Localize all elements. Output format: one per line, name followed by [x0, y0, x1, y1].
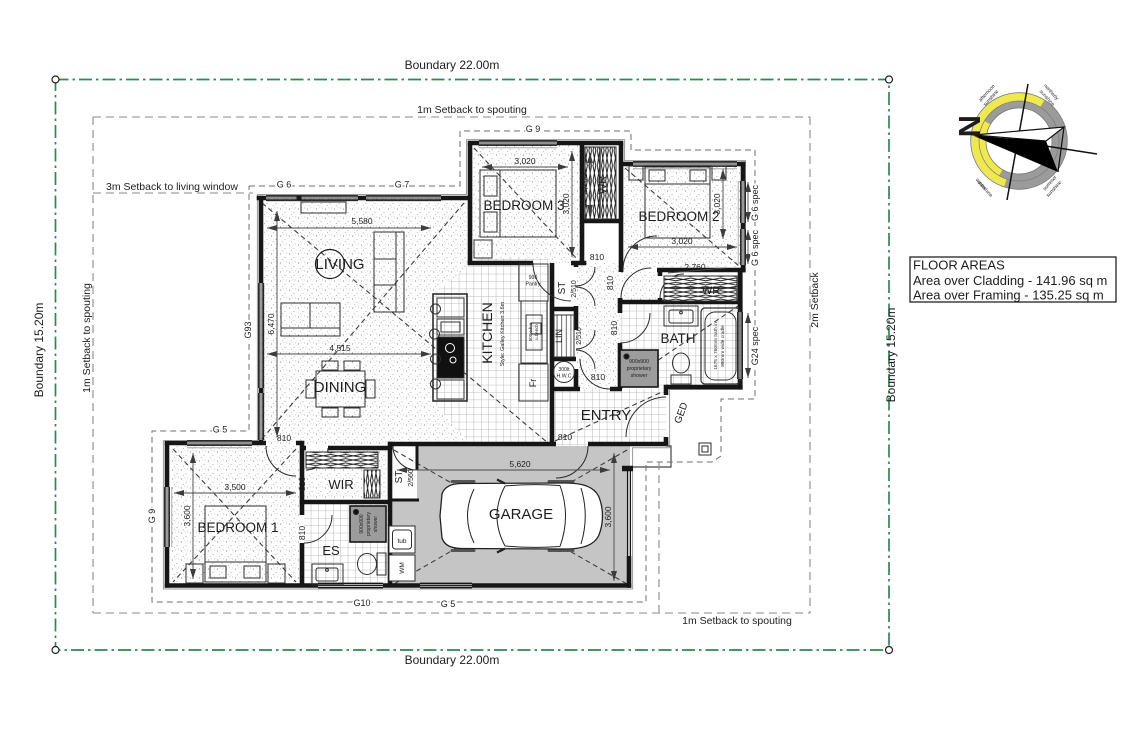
svg-text:shower: shower — [631, 373, 648, 379]
svg-text:1m Setback to spouting: 1m Setback to spouting — [81, 283, 93, 393]
svg-text:LIN: LIN — [554, 329, 564, 343]
svg-text:1m Setback to spouting: 1m Setback to spouting — [417, 104, 527, 116]
svg-text:Boundary 15.20m: Boundary 15.20m — [884, 308, 898, 403]
svg-text:ENTRY: ENTRY — [581, 407, 632, 424]
svg-text:KITCHEN: KITCHEN — [479, 302, 495, 363]
svg-text:WIR: WIR — [328, 477, 353, 492]
svg-text:Boundary 22.00m: Boundary 22.00m — [405, 653, 500, 667]
svg-text:shower: shower — [373, 516, 379, 532]
svg-text:G10: G10 — [353, 598, 370, 608]
svg-text:Fr: Fr — [528, 379, 538, 388]
svg-text:600 e.h.o: 600 e.h.o — [528, 322, 533, 341]
svg-text:810: 810 — [297, 526, 307, 540]
svg-text:G 9: G 9 — [526, 124, 541, 134]
svg-text:BEDROOM 2: BEDROOM 2 — [638, 209, 719, 224]
svg-text:3,020: 3,020 — [671, 236, 693, 246]
svg-text:3,500: 3,500 — [224, 482, 246, 492]
svg-text:WR: WR — [702, 285, 720, 297]
svg-text:G 5: G 5 — [441, 599, 456, 609]
svg-text:2/510: 2/510 — [576, 327, 583, 345]
svg-text:810: 810 — [609, 321, 619, 335]
svg-text:G 6 spec: G 6 spec — [750, 184, 760, 221]
svg-text:880mm wide cradle: 880mm wide cradle — [720, 325, 726, 367]
svg-text:3,600: 3,600 — [182, 505, 192, 527]
svg-text:u.bench: u.bench — [534, 324, 539, 340]
svg-text:1675 x 760mm bath in: 1675 x 760mm bath in — [713, 322, 719, 370]
svg-text:3m Setback to living window: 3m Setback to living window — [106, 181, 238, 193]
svg-text:G 7: G 7 — [395, 180, 410, 190]
svg-text:BATH: BATH — [660, 331, 695, 346]
svg-text:810: 810 — [590, 252, 604, 262]
svg-text:2,760: 2,760 — [579, 173, 589, 195]
svg-text:ST: ST — [557, 282, 568, 295]
svg-text:5,580: 5,580 — [351, 216, 373, 226]
svg-text:4,515: 4,515 — [329, 343, 351, 353]
svg-text:2/510: 2/510 — [571, 280, 578, 298]
svg-text:proprietary: proprietary — [627, 366, 652, 372]
svg-text:Pantry: Pantry — [526, 282, 541, 288]
svg-text:N: N — [952, 115, 987, 137]
svg-text:LIVING: LIVING — [315, 256, 364, 273]
svg-text:G 6: G 6 — [277, 180, 292, 190]
svg-text:5,620: 5,620 — [509, 459, 531, 469]
svg-text:tub: tub — [397, 538, 406, 545]
svg-text:FLOOR AREAS: FLOOR AREAS — [913, 258, 1005, 273]
svg-text:3,600: 3,600 — [603, 506, 613, 528]
svg-text:G93: G93 — [243, 321, 253, 338]
svg-text:Area over Cladding - 141.96 sq: Area over Cladding - 141.96 sq m — [913, 273, 1107, 288]
svg-text:H.W.C: H.W.C — [557, 374, 572, 380]
svg-text:WR: WR — [597, 176, 609, 194]
svg-text:Boundary 15.20m: Boundary 15.20m — [32, 303, 46, 398]
svg-text:G 5: G 5 — [213, 425, 228, 435]
svg-text:810: 810 — [277, 433, 291, 443]
svg-text:900: 900 — [529, 275, 538, 281]
svg-text:DINING: DINING — [314, 379, 367, 396]
svg-text:G 6 spec: G 6 spec — [750, 229, 760, 266]
svg-text:810: 810 — [297, 477, 307, 491]
svg-text:proprietary: proprietary — [366, 512, 372, 536]
svg-text:900x900: 900x900 — [359, 514, 365, 533]
svg-text:810: 810 — [558, 432, 572, 442]
svg-text:810: 810 — [605, 276, 615, 290]
svg-text:3,020: 3,020 — [514, 156, 536, 166]
svg-text:BEDROOM 3: BEDROOM 3 — [483, 198, 564, 213]
svg-text:2/560: 2/560 — [408, 469, 415, 487]
svg-text:GARAGE: GARAGE — [489, 506, 553, 523]
svg-text:2m Setback: 2m Setback — [809, 272, 821, 328]
svg-text:Boundary 22.00m: Boundary 22.00m — [405, 58, 500, 72]
svg-text:Area over Framing - 135.25 sq: Area over Framing - 135.25 sq m — [913, 288, 1104, 303]
svg-text:ES: ES — [322, 543, 340, 558]
svg-text:6,470: 6,470 — [266, 313, 276, 335]
svg-text:810: 810 — [591, 372, 605, 382]
svg-text:ST: ST — [394, 471, 405, 484]
svg-text:G24 spec: G24 spec — [750, 326, 760, 365]
svg-text:Style: Galley Kitchen 3.6m: Style: Galley Kitchen 3.6m — [500, 301, 506, 366]
svg-text:BEDROOM 1: BEDROOM 1 — [197, 520, 278, 535]
svg-text:1m Setback to spouting: 1m Setback to spouting — [682, 615, 792, 627]
svg-text:G 9: G 9 — [147, 509, 157, 524]
svg-text:900x900: 900x900 — [629, 359, 649, 365]
svg-text:WM: WM — [399, 562, 406, 574]
svg-text:300lt: 300lt — [558, 367, 570, 373]
